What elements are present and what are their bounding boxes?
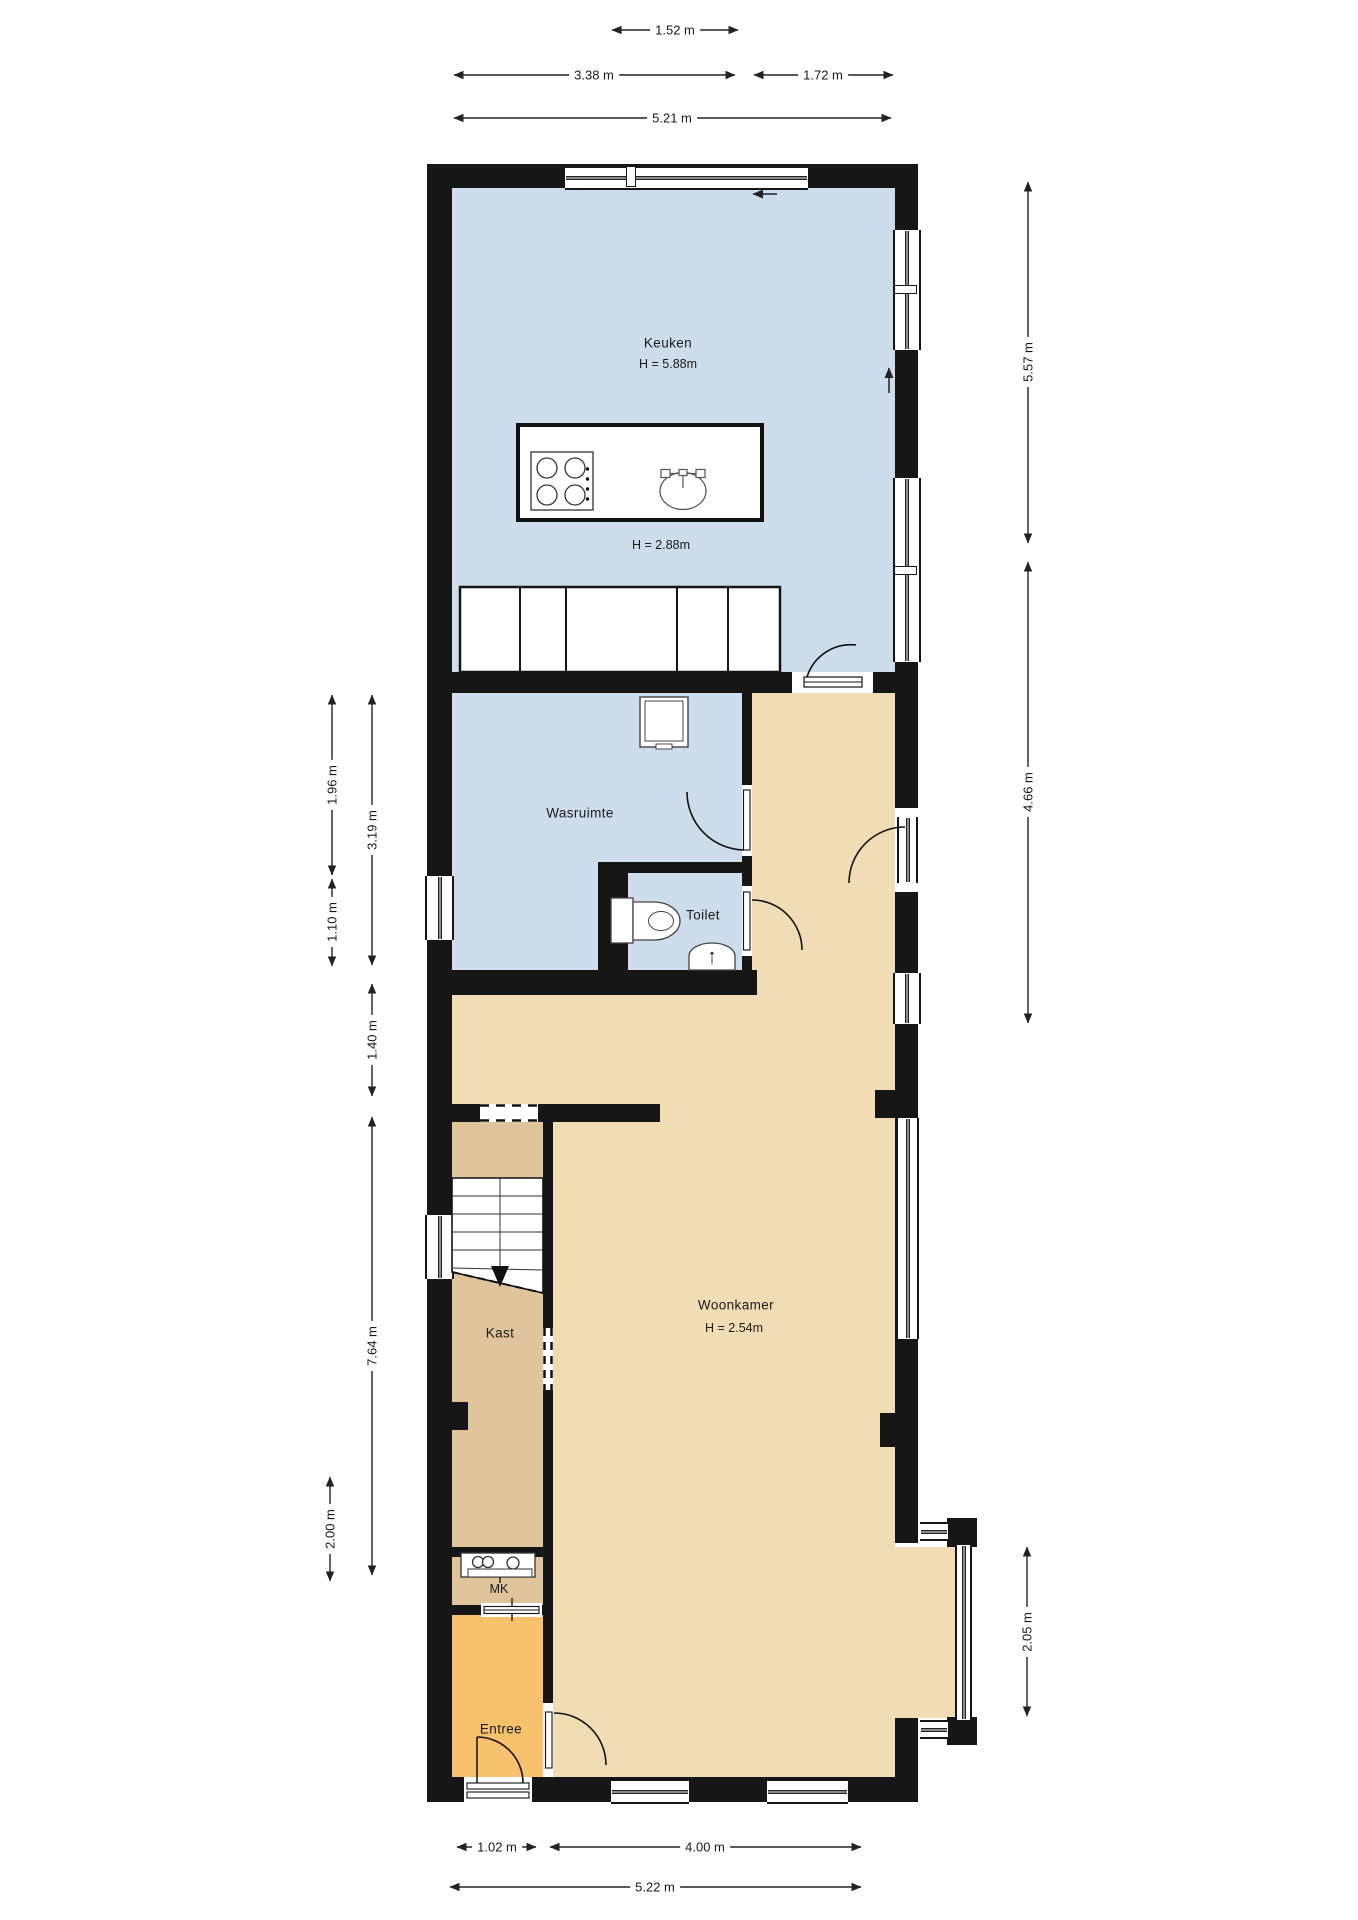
- dimension-label: 4.66 m: [1021, 767, 1036, 817]
- dimension-label: 5.21 m: [647, 111, 697, 126]
- dimension-label: 7.64 m: [365, 1321, 380, 1371]
- kitchen-door: [804, 645, 862, 687]
- kitchen-counter: [460, 587, 780, 672]
- dimension-label: 5.22 m: [630, 1880, 680, 1895]
- terrace-door: [849, 827, 905, 883]
- room-label-wasruimte: Wasruimte: [546, 806, 614, 821]
- dimension-label: 1.40 m: [365, 1015, 380, 1065]
- dimension-label: 1.72 m: [798, 68, 848, 83]
- dimension-label: 1.52 m: [650, 23, 700, 38]
- dimension-label: 3.19 m: [365, 805, 380, 855]
- dimension-label: 2.00 m: [323, 1504, 338, 1554]
- toilet-door: [744, 892, 803, 950]
- room-label-woonkamer: Woonkamer: [698, 1298, 774, 1313]
- room-label-keuken: Keuken: [644, 336, 692, 351]
- plan-linework: [0, 0, 1358, 1920]
- room-height-woonkamer: H = 2.54m: [705, 1321, 763, 1335]
- room-height-keuken-2: H = 2.88m: [632, 538, 690, 552]
- kitchen-island: [518, 425, 762, 520]
- sink-icon: [660, 470, 706, 510]
- room-label-entree: Entree: [480, 1722, 522, 1737]
- dimension-label: 2.05 m: [1020, 1607, 1035, 1657]
- cooktop-icon: [531, 452, 593, 510]
- toilet-icon: [611, 898, 680, 943]
- room-label-toilet: Toilet: [686, 908, 720, 923]
- dimension-label: 4.00 m: [680, 1840, 730, 1855]
- dimension-label: 5.57 m: [1021, 337, 1036, 387]
- washing-machine-icon: [640, 697, 688, 749]
- entree-inner-door: [546, 1712, 607, 1768]
- mk-door: [484, 1607, 539, 1614]
- room-label-meterkast: MK: [490, 1582, 509, 1596]
- dimension-label: 1.02 m: [472, 1840, 522, 1855]
- dimension-label: 1.96 m: [325, 760, 340, 810]
- stairs-down-icon: [452, 1178, 543, 1293]
- wasruimte-door: [687, 790, 750, 850]
- dimension-label: 3.38 m: [569, 68, 619, 83]
- floor-plan: Keuken H = 5.88m H = 2.88m Wasruimte Toi…: [0, 0, 1358, 1920]
- hand-basin-icon: [689, 943, 735, 970]
- room-height-keuken: H = 5.88m: [639, 357, 697, 371]
- dimension-label: 1.10 m: [325, 897, 340, 947]
- dimension-lines: [330, 30, 1028, 1887]
- front-door: [467, 1737, 529, 1798]
- room-label-kast: Kast: [486, 1326, 515, 1341]
